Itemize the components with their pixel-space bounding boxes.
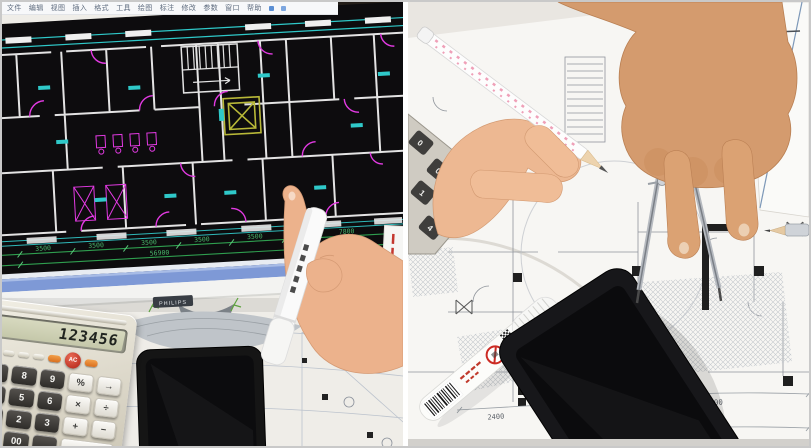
dim-label: 3500 bbox=[88, 241, 104, 250]
key-8: 8 bbox=[11, 365, 37, 386]
thumb bbox=[470, 170, 562, 203]
key-2: 2 bbox=[6, 409, 32, 430]
cad-menu-item: 编辑 bbox=[29, 3, 44, 13]
key-00: 00 bbox=[3, 431, 29, 446]
key-dot: . bbox=[31, 434, 57, 446]
cad-menu-item: 窗口 bbox=[225, 3, 240, 13]
cad-menu-item: 文件 bbox=[7, 3, 22, 13]
orange-key bbox=[48, 354, 62, 363]
key-4: 4 bbox=[2, 384, 7, 405]
philips-badge: PHILIPS bbox=[153, 295, 194, 308]
cad-menu-item: 工具 bbox=[116, 3, 131, 13]
dim-total-label: 56900 bbox=[150, 248, 170, 257]
dim-label: 3500 bbox=[141, 238, 157, 247]
key-arrow: → bbox=[96, 376, 122, 397]
calculator-keypad: 7 8 9 % → 4 5 6 × ÷ 1 2 3 + − 0 00 . = bbox=[2, 362, 122, 446]
cad-menu-item: 视图 bbox=[51, 3, 66, 13]
key-1: 1 bbox=[2, 405, 4, 426]
cad-menu-item: 绘图 bbox=[138, 3, 153, 13]
key-5: 5 bbox=[8, 387, 34, 408]
photo-collage: 文件 编辑 视图 插入 格式 工具 绘图 标注 修改 参数 窗口 帮助 bbox=[0, 0, 811, 448]
fingernail bbox=[679, 242, 689, 254]
memory-key bbox=[3, 349, 15, 355]
cad-menu-item: 帮助 bbox=[247, 3, 262, 13]
dim-width-label: 2400 bbox=[487, 412, 504, 421]
ac-key: AC bbox=[64, 352, 82, 370]
key-minus: − bbox=[90, 419, 116, 440]
cad-menu-bar: 文件 编辑 视图 插入 格式 工具 绘图 标注 修改 参数 窗口 帮助 bbox=[2, 2, 338, 15]
key-6: 6 bbox=[37, 391, 63, 412]
smartphone-left bbox=[136, 346, 266, 446]
cad-menu-item: 格式 bbox=[94, 3, 109, 13]
right-photo-blueprint-hands: 2400 9000 30700 0 0 1 4 bbox=[408, 2, 809, 446]
cad-menu-item: 参数 bbox=[203, 3, 218, 13]
dim-label: 3500 bbox=[35, 244, 51, 253]
orange-key bbox=[84, 358, 98, 367]
photo-bottom-strip bbox=[408, 439, 809, 446]
cad-menu-item: 标注 bbox=[160, 3, 175, 13]
memory-key bbox=[33, 353, 45, 359]
key-divide: ÷ bbox=[93, 397, 119, 418]
key-3: 3 bbox=[34, 412, 60, 433]
cad-menu-item: 修改 bbox=[182, 3, 197, 13]
cad-menu-item: 插入 bbox=[72, 3, 87, 13]
dim-label: 3500 bbox=[247, 232, 263, 241]
key-multiply: × bbox=[65, 394, 91, 415]
fingernail bbox=[289, 192, 296, 201]
right-photo-scene: 2400 9000 30700 0 0 1 4 bbox=[408, 2, 809, 446]
toolbar-icon bbox=[281, 6, 286, 11]
key-percent: % bbox=[67, 372, 93, 393]
key-9: 9 bbox=[39, 369, 65, 390]
thumb bbox=[306, 259, 342, 292]
key-7: 7 bbox=[2, 362, 9, 383]
desk-calculator: 123456 AC 7 8 9 % → 4 5 6 × ÷ bbox=[2, 297, 138, 446]
fingernail bbox=[739, 224, 750, 237]
dim-label: 3500 bbox=[194, 235, 210, 244]
key-plus: + bbox=[62, 416, 88, 437]
toolbar-icon bbox=[269, 6, 274, 11]
left-photo-cad-monitor: 文件 编辑 视图 插入 格式 工具 绘图 标注 修改 参数 窗口 帮助 bbox=[2, 2, 403, 446]
memory-key bbox=[18, 351, 30, 357]
